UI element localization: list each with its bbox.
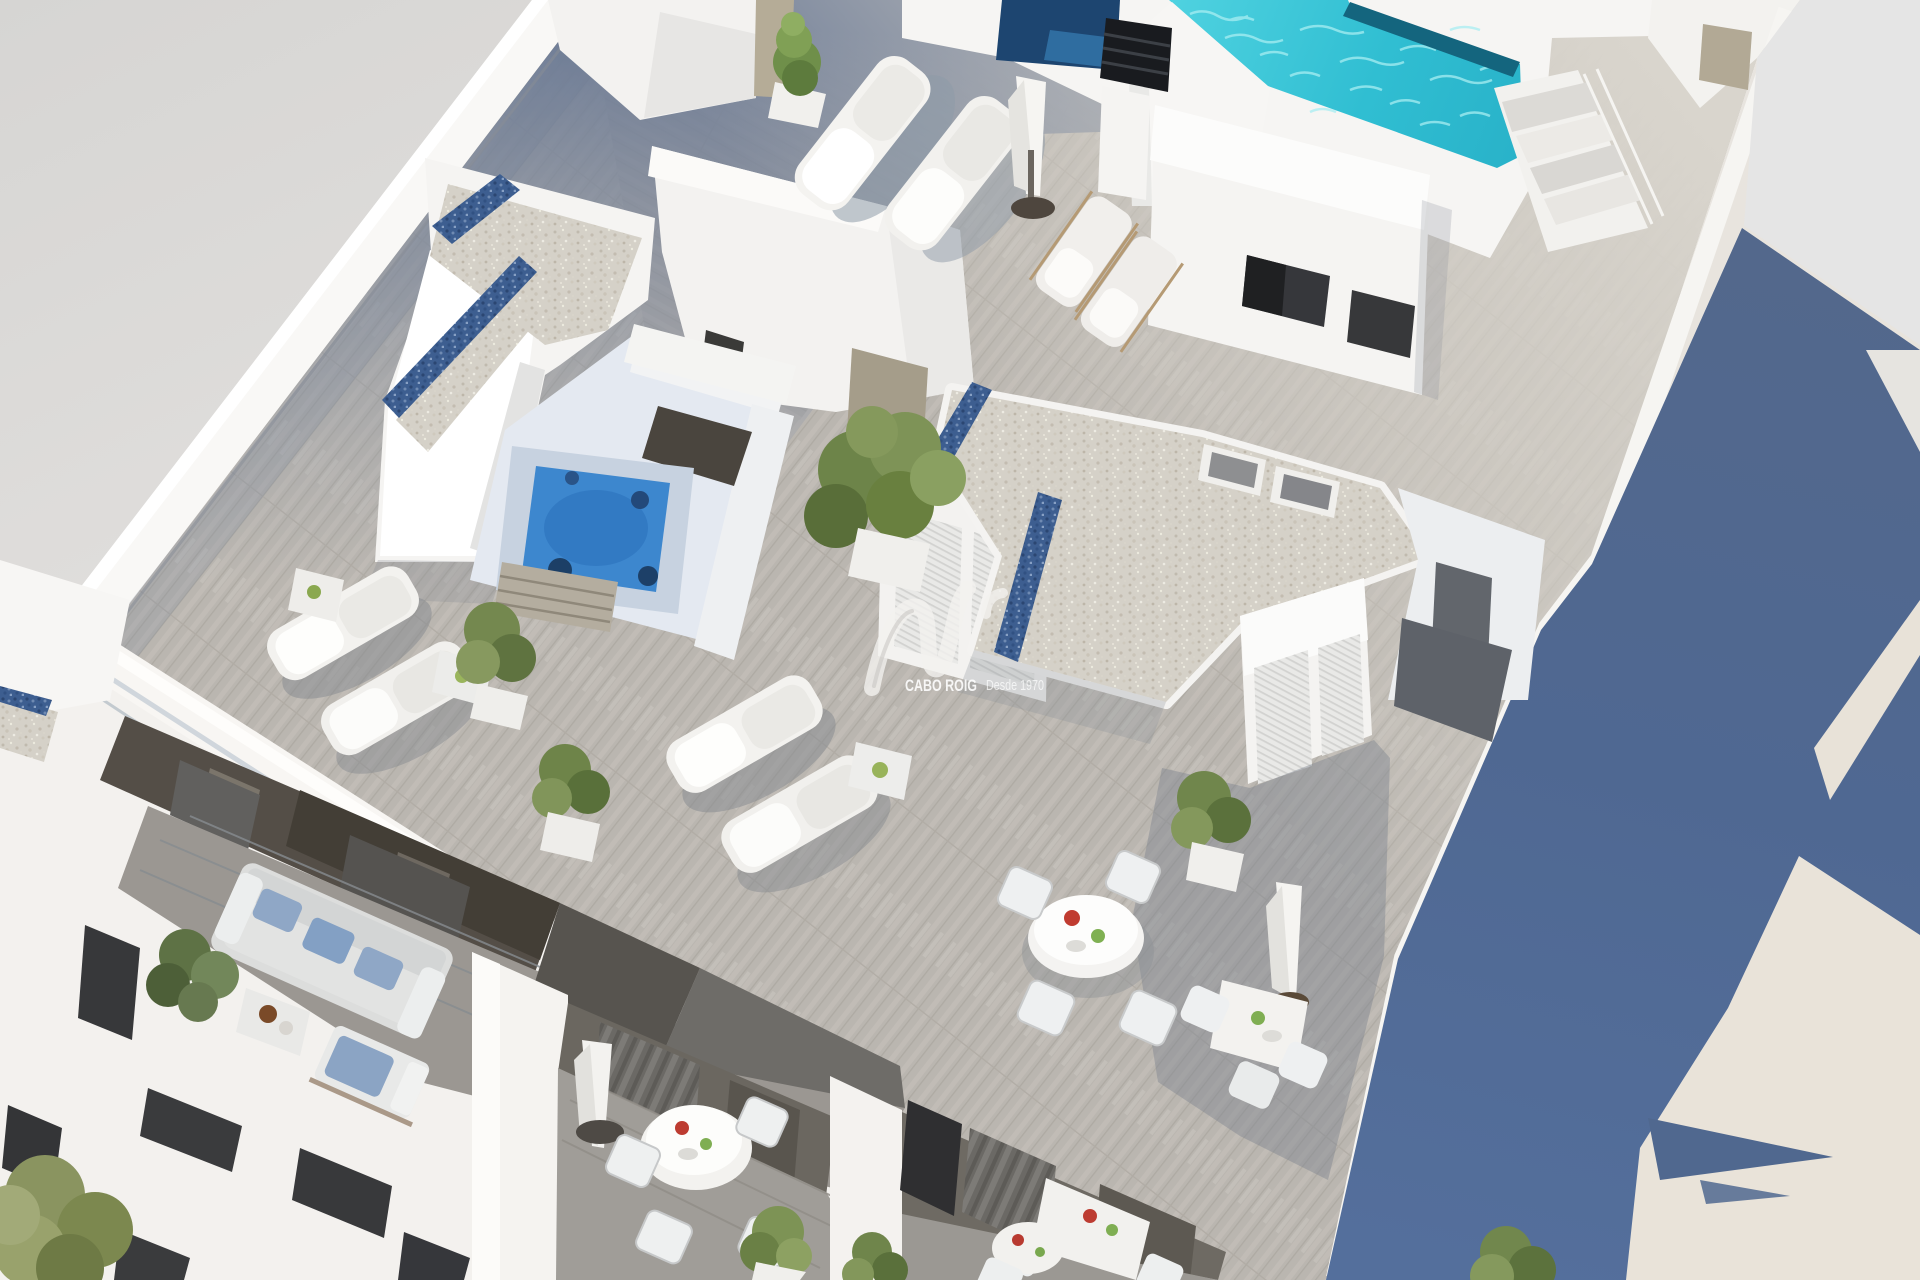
svg-text:CABO ROIG: CABO ROIG (905, 676, 977, 695)
svg-text:Desde 1970: Desde 1970 (986, 677, 1044, 694)
